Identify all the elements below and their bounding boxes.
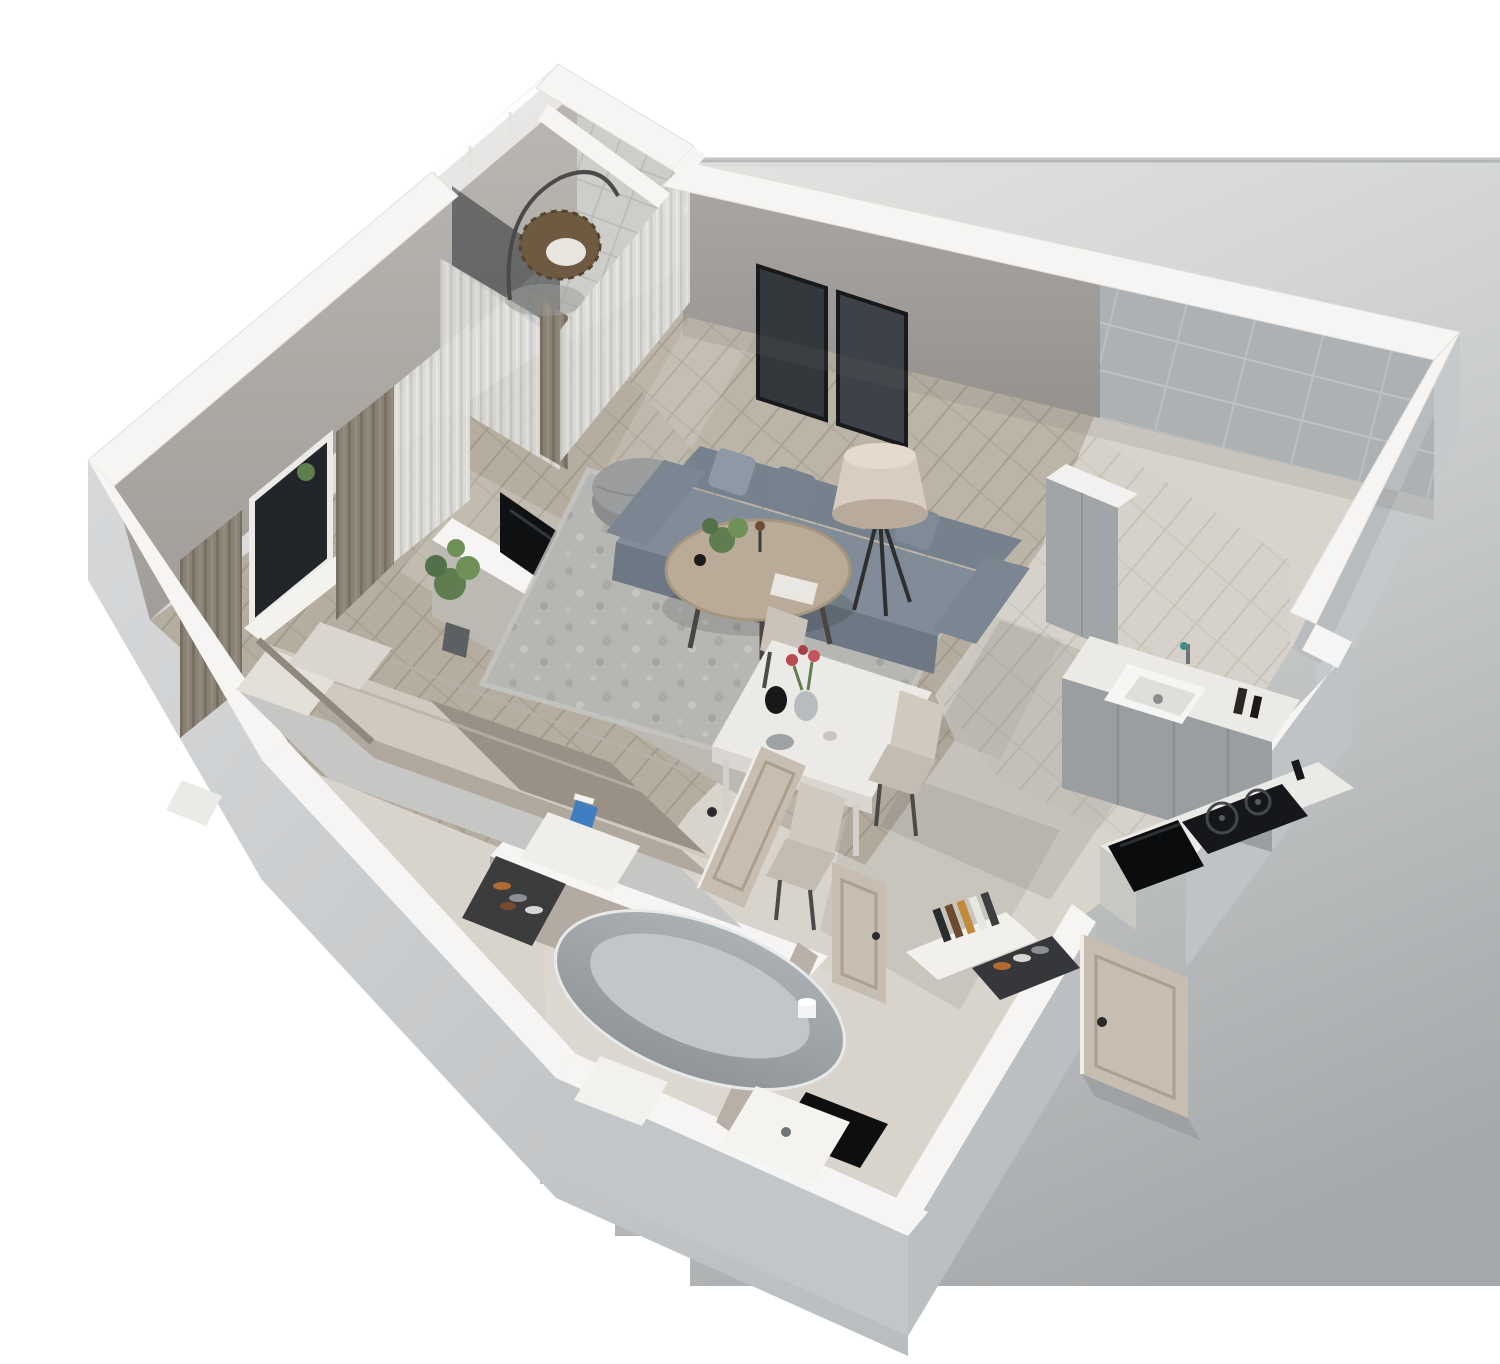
hanging-chair-shadow bbox=[505, 284, 585, 316]
shoe-2 bbox=[509, 894, 527, 902]
table-decor-black bbox=[694, 554, 706, 566]
hall-shoe-1 bbox=[993, 962, 1011, 970]
shower-drain bbox=[781, 1127, 791, 1137]
lamp-shade-top bbox=[844, 443, 916, 469]
tp-roll-top bbox=[798, 998, 816, 1006]
bathroom-door-handle bbox=[872, 932, 880, 940]
entry-door-handle bbox=[1097, 1017, 1107, 1027]
floorplan-svg bbox=[0, 0, 1500, 1364]
hall-shoe-2 bbox=[1013, 954, 1031, 962]
table-decor-knob bbox=[755, 521, 765, 531]
shoe-3 bbox=[525, 906, 543, 914]
faucet-head bbox=[1180, 642, 1188, 650]
hob-dot-2 bbox=[1255, 799, 1261, 805]
plant-leaf-2 bbox=[456, 556, 480, 580]
vase bbox=[794, 691, 818, 721]
shoe-4 bbox=[500, 902, 516, 910]
hanging-chair-cushion bbox=[546, 238, 586, 266]
window-plant bbox=[297, 463, 315, 481]
bowl bbox=[766, 734, 794, 750]
table-plant-leaf-2 bbox=[728, 518, 748, 538]
black-jug bbox=[765, 686, 787, 714]
tulip-3 bbox=[798, 645, 808, 655]
toilet-paper-roll bbox=[798, 998, 816, 1018]
hall-shoe-3 bbox=[1031, 946, 1049, 954]
tulip-2 bbox=[808, 650, 820, 662]
hob-dot-1 bbox=[1219, 815, 1225, 821]
small-cup bbox=[823, 731, 837, 741]
bedroom-door-handle bbox=[707, 807, 717, 817]
lamp-shade-bottom bbox=[832, 499, 928, 529]
shoe-1 bbox=[493, 882, 511, 890]
floorplan-render bbox=[0, 0, 1500, 1364]
plant-leaf-3 bbox=[425, 555, 447, 577]
tulip-1 bbox=[786, 654, 798, 666]
plant-leaf-4 bbox=[447, 539, 465, 557]
sink-drain bbox=[1153, 694, 1163, 704]
table-plant-leaf-3 bbox=[702, 518, 718, 534]
bathroom-door bbox=[832, 862, 886, 1004]
